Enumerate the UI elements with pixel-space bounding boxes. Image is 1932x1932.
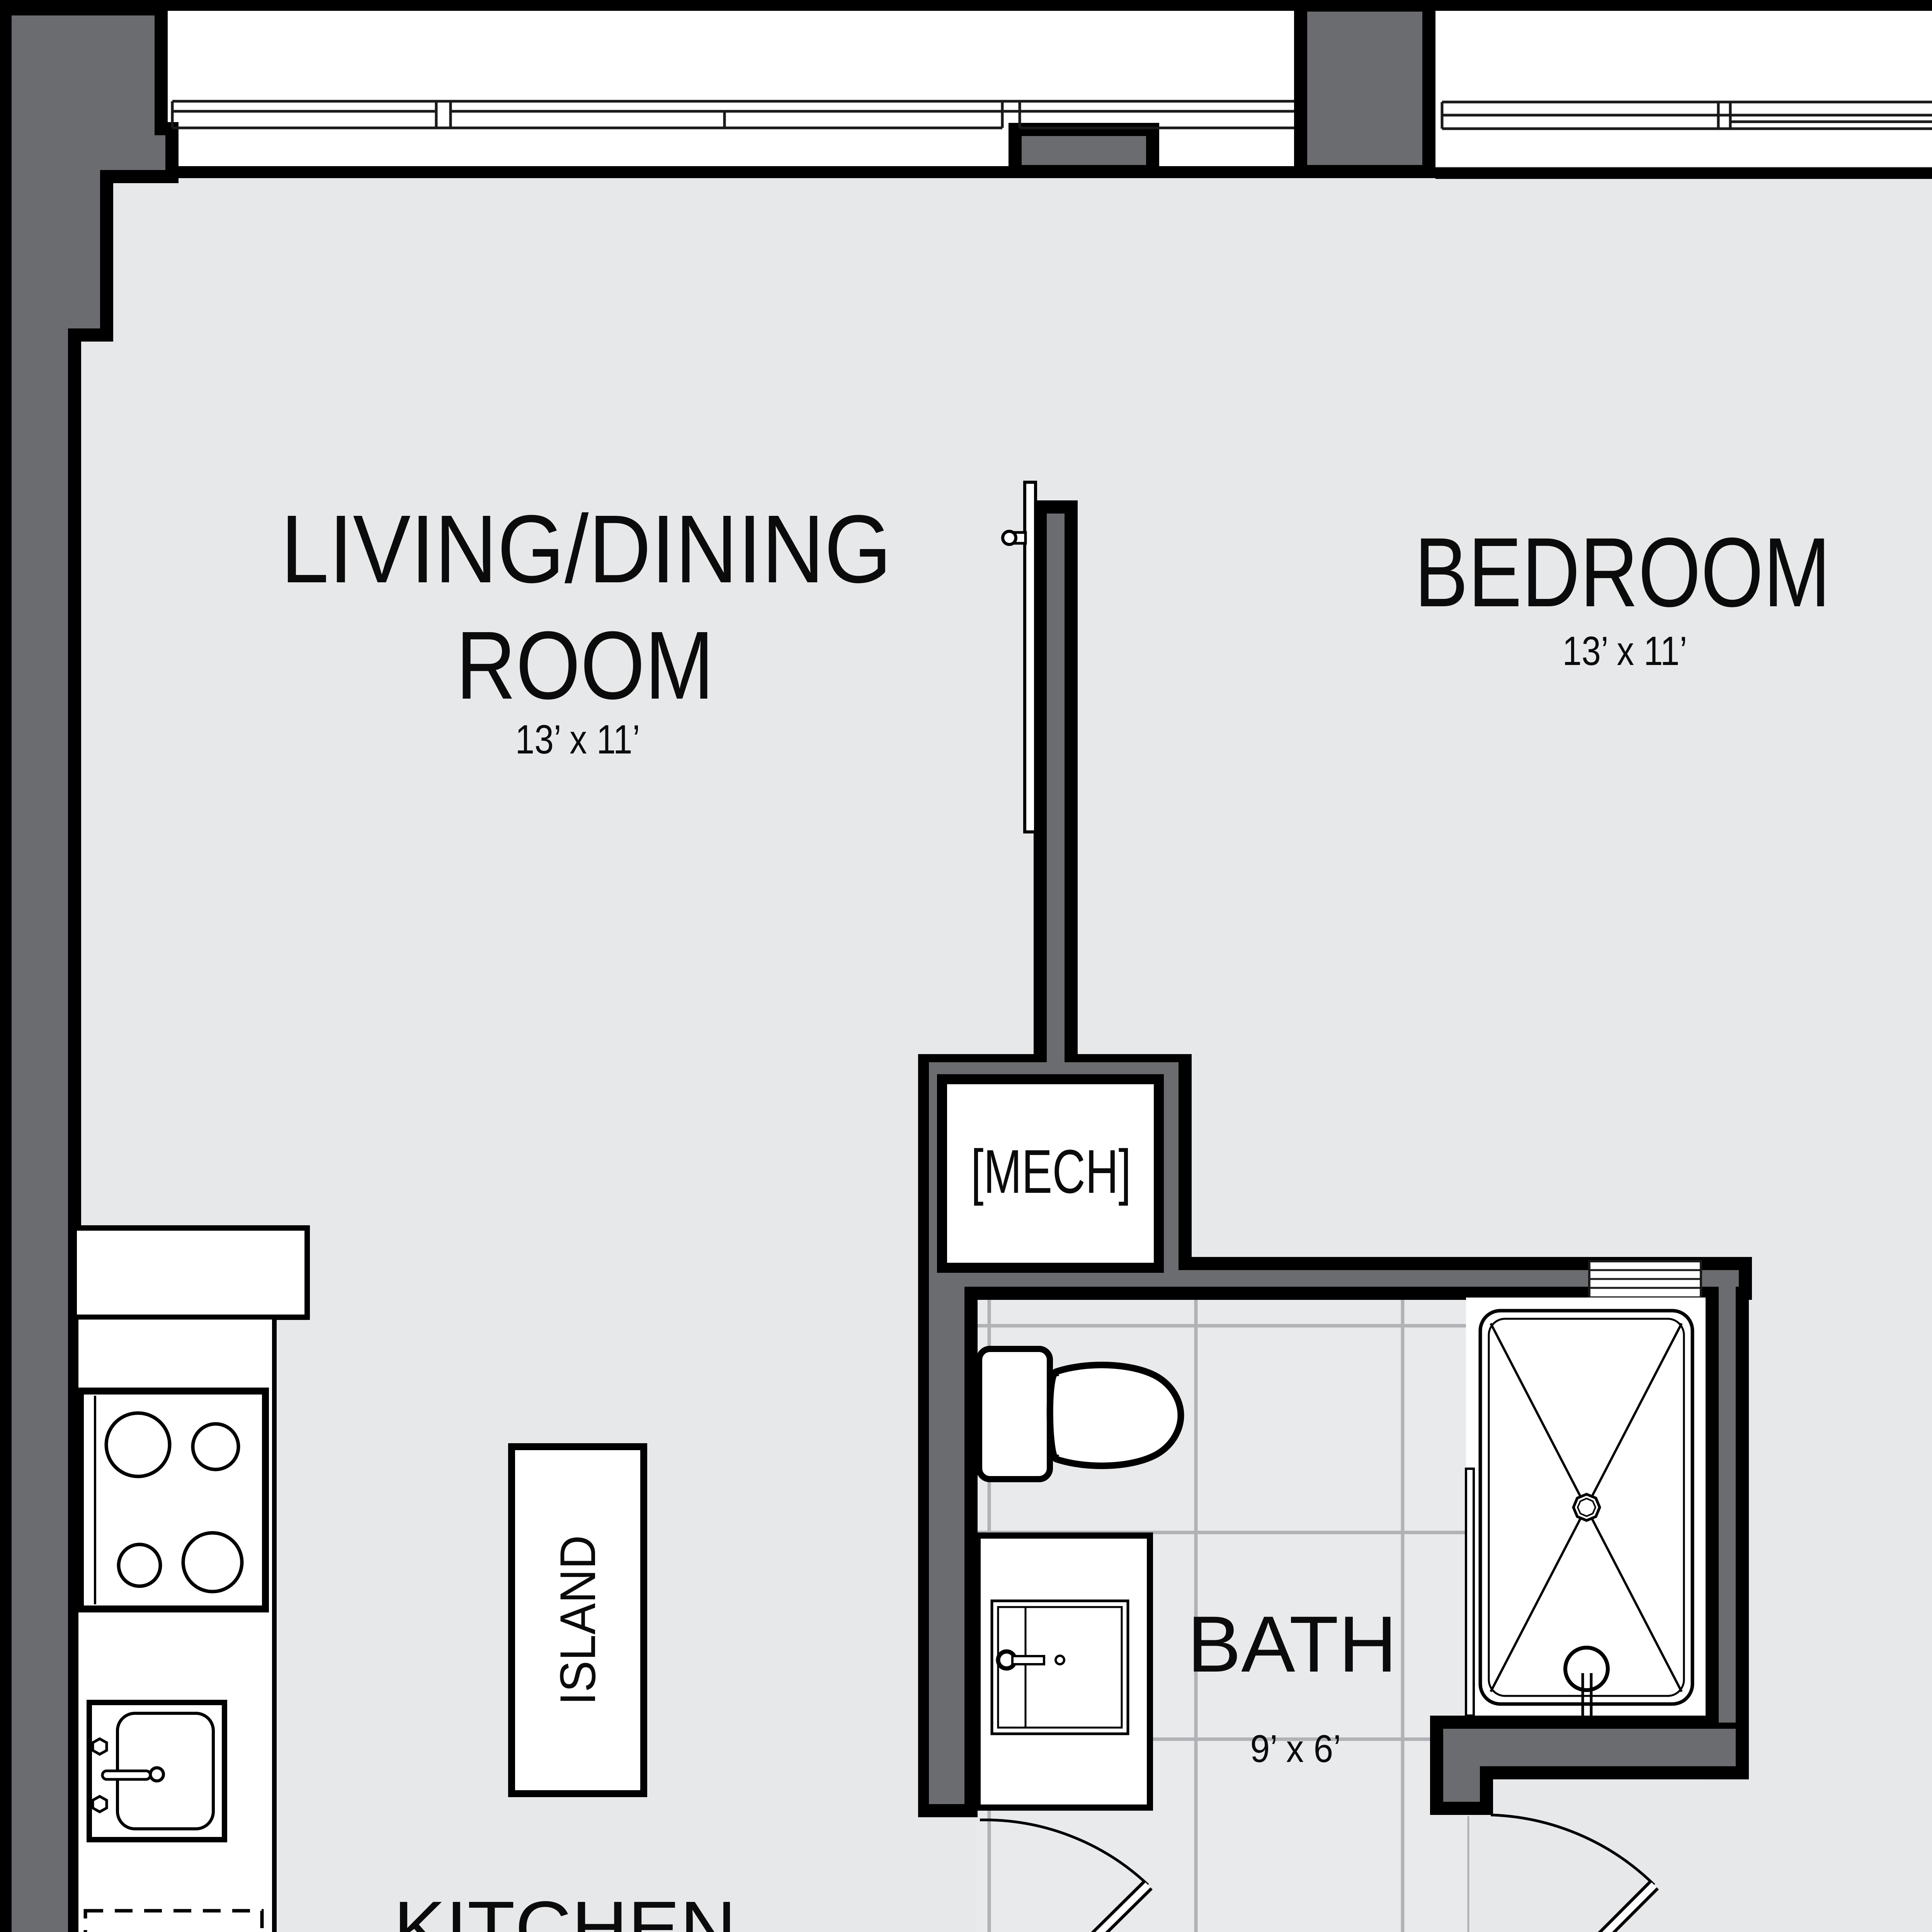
svg-text:9’ x 6’: 9’ x 6’ — [1250, 1727, 1341, 1770]
svg-text:13’ x 11’: 13’ x 11’ — [1563, 628, 1687, 674]
svg-text:BEDROOM: BEDROOM — [1415, 517, 1831, 628]
svg-text:BATH: BATH — [1187, 1600, 1397, 1689]
svg-text:KITCHEN: KITCHEN — [394, 1886, 736, 1932]
svg-text:ISLAND: ISLAND — [549, 1535, 606, 1705]
svg-text:13’ x 11’: 13’ x 11’ — [515, 717, 640, 762]
svg-text:LIVING/DINING: LIVING/DINING — [281, 495, 892, 603]
svg-text:ROOM: ROOM — [456, 611, 714, 719]
svg-text:[MECH]: [MECH] — [971, 1137, 1131, 1206]
